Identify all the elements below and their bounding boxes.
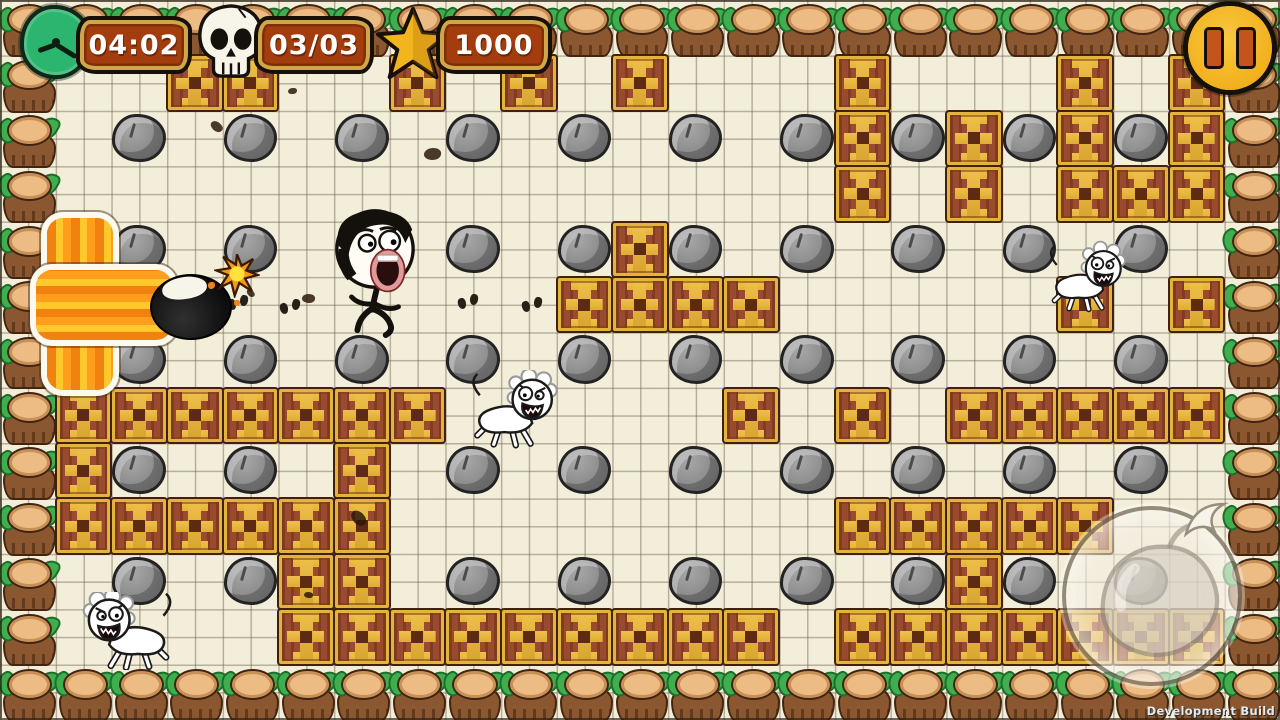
- timer-banner: 04:02: [80, 20, 188, 70]
- hud: 04:02 03/03 1000: [0, 0, 1280, 720]
- score-banner: 1000: [440, 20, 548, 70]
- kills-banner: 03/03: [258, 20, 370, 70]
- timer-value: 04:02: [89, 30, 180, 61]
- development-build-watermark: Development Build: [1147, 704, 1275, 718]
- pause-button[interactable]: [1188, 6, 1272, 90]
- kills-value: 03/03: [269, 30, 359, 61]
- score-value: 1000: [454, 30, 533, 61]
- game-screen: 04:02 03/03 1000: [0, 0, 1280, 720]
- pause-icon: [1204, 27, 1224, 69]
